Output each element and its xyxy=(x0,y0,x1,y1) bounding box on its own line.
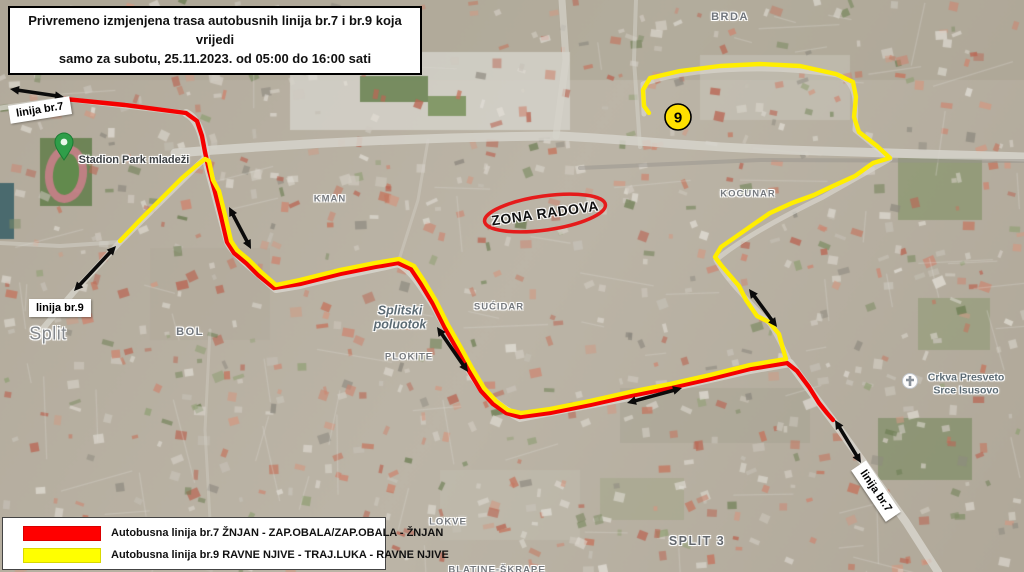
road xyxy=(186,113,938,572)
stadium-pin-icon xyxy=(55,133,73,160)
arrow-shaft xyxy=(838,425,858,458)
legend-label: Autobusna linija br.9 RAVNE NJIVE - TRAJ… xyxy=(111,549,449,561)
arrow-shaft xyxy=(16,90,58,96)
road xyxy=(398,140,428,263)
arrowhead xyxy=(10,86,20,95)
bus-routes-layer xyxy=(65,64,890,420)
road xyxy=(205,330,210,520)
title-line-1: Privremeno izmjenjena trasa autobusnih l… xyxy=(16,12,414,50)
legend: Autobusna linija br.7 ŽNJAN - ZAP.OBALA/… xyxy=(2,517,386,570)
church-icon xyxy=(903,374,918,389)
arrow-shaft xyxy=(78,250,112,286)
road xyxy=(634,0,640,147)
route-direction-arrow xyxy=(835,420,861,463)
road xyxy=(556,0,566,136)
arrow-shaft xyxy=(232,212,248,243)
legend-swatch-red xyxy=(23,526,101,541)
route-map-flyer: 9 BRDAKOCUNARKMANSUĆIDARBOLPLOKITELOKVES… xyxy=(0,0,1024,572)
legend-row: Autobusna linija br.9 RAVNE NJIVE - TRAJ… xyxy=(9,544,379,566)
road xyxy=(580,160,1024,168)
title-box: Privremeno izmjenjena trasa autobusnih l… xyxy=(8,6,422,75)
road xyxy=(0,242,120,246)
route-direction-arrow xyxy=(74,246,116,291)
route-br9-line xyxy=(120,64,890,413)
label-linija-br9: linija br.9 xyxy=(29,299,91,317)
title-line-2: samo za subotu, 25.11.2023. od 05:00 do … xyxy=(16,50,414,69)
legend-swatch-yellow xyxy=(23,548,101,563)
bus-stop-9-number: 9 xyxy=(674,110,682,127)
bus-stop-9-marker[interactable]: 9 xyxy=(665,104,691,130)
legend-label: Autobusna linija br.7 ŽNJAN - ZAP.OBALA/… xyxy=(111,527,443,539)
road xyxy=(175,136,1024,157)
legend-row: Autobusna linija br.7 ŽNJAN - ZAP.OBALA/… xyxy=(9,522,379,544)
